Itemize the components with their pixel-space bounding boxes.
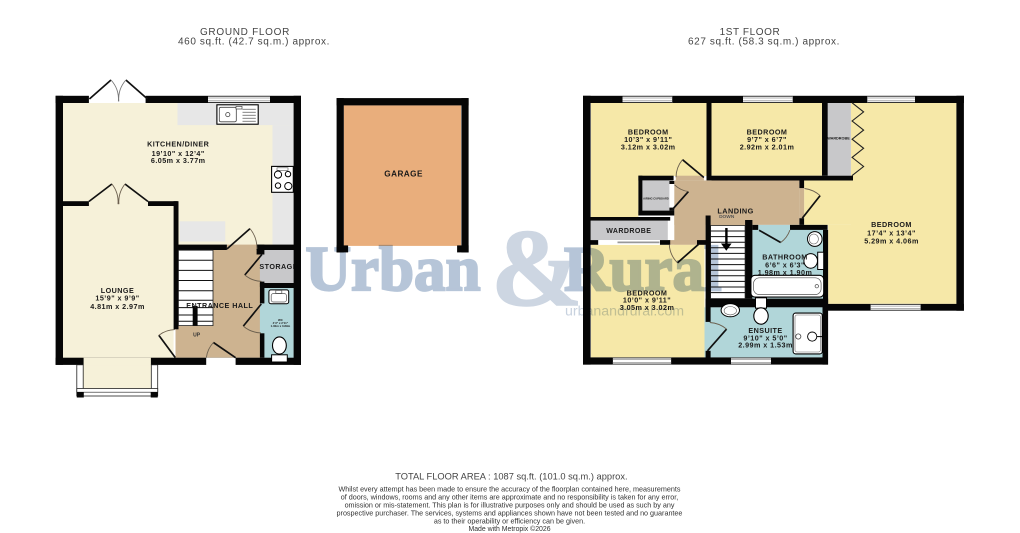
svg-text:460 sq.ft. (42.7 sq.m.) approx: 460 sq.ft. (42.7 sq.m.) approx. [178, 37, 330, 48]
svg-text:ENTRANCE HALL: ENTRANCE HALL [186, 301, 253, 310]
svg-text:4.81m x 2.97m: 4.81m x 2.97m [90, 302, 145, 311]
svg-text:1.30m x 0.89m: 1.30m x 0.89m [271, 324, 291, 328]
svg-text:627 sq.ft. (58.3 sq.m.) approx: 627 sq.ft. (58.3 sq.m.) approx. [688, 37, 840, 48]
svg-text:Rural: Rural [564, 234, 722, 304]
svg-text:GARAGE: GARAGE [384, 170, 423, 179]
svg-text:6.05m x 3.77m: 6.05m x 3.77m [151, 156, 206, 165]
svg-text:Made with Metropix ©2026: Made with Metropix ©2026 [468, 525, 550, 533]
svg-text:UP: UP [193, 332, 201, 338]
svg-text:STORAGE: STORAGE [259, 262, 298, 271]
svg-text:1.98m x 1.90m: 1.98m x 1.90m [758, 268, 813, 277]
svg-text:TOTAL FLOOR AREA : 1087 sq.ft.: TOTAL FLOOR AREA : 1087 sq.ft. (101.0 sq… [395, 472, 627, 482]
svg-text:2.92m x 2.01m: 2.92m x 2.01m [740, 143, 795, 152]
svg-text:2.99m x 1.53m: 2.99m x 1.53m [738, 341, 793, 350]
svg-text:DOWN: DOWN [719, 214, 735, 220]
svg-text:AIRING CUPBOARD: AIRING CUPBOARD [643, 197, 669, 201]
svg-text:Urban: Urban [306, 234, 481, 304]
svg-text:3.12m x 3.02m: 3.12m x 3.02m [621, 143, 676, 152]
svg-text:KITCHEN/DINER: KITCHEN/DINER [147, 140, 210, 149]
svg-text:urbanandrural.com: urbanandrural.com [565, 304, 684, 320]
svg-text:as to their operability or eff: as to their operability or efficiency ca… [434, 516, 585, 525]
svg-text:WARDROBE: WARDROBE [827, 137, 850, 141]
svg-text:5.29m x 4.06m: 5.29m x 4.06m [864, 237, 919, 246]
